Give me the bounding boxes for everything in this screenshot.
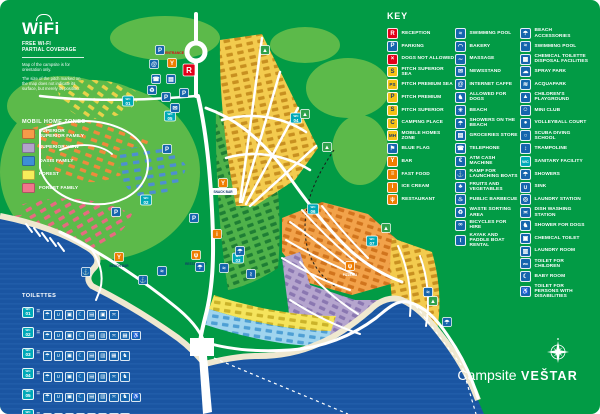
facility-icon: ∪ [54,372,64,382]
key-item: wc TOILET FOR CHILDREN [520,258,600,269]
key-label: PITCH SUPERIOR [402,108,456,113]
key-icon: ☂ [455,118,466,129]
key-item: ⚓ RAMP FOR LAUNCHING BOATS [455,169,519,180]
facility-icon: ∪ [54,393,64,403]
map-marker-internet-caffe[interactable]: @ [150,60,159,69]
campsite-title-prefix: Campsite [457,367,516,383]
key-item: ☁ SPRAY PARK [520,66,600,77]
compass-rose-icon [544,338,572,366]
key-icon: ≍ [520,207,531,218]
toilettes-row: WC 05 = ☂∪▣☾▤▥≍♞♿ [22,385,157,403]
wc-badge-number: 02 [25,332,30,337]
key-label: RAMP FOR LAUNCHING BOATS [470,169,520,179]
wifi-line2: PARTIAL COVERAGE [22,47,84,53]
key-item: ≡ FAST FOOD [387,169,455,180]
facility-icon: ▤ [87,351,97,361]
key-icon: ∼ [455,54,466,65]
zone-label: SUPERIOR VIEW [39,145,91,150]
key-icon: R [387,28,398,39]
key-item: C CAMPING PLACE [387,118,455,129]
key-icon: ≋ [520,79,531,90]
map-marker-parking[interactable]: P [162,93,171,102]
wc-badge: WC 01 [22,307,34,318]
facility-icon: ☂ [43,393,53,403]
facility-icons: ☂∪▣☾▤▥≍♞ [43,365,132,383]
key-item: ☎ TELEPHONE [455,143,519,154]
key-icon: ⚓ [455,169,466,180]
mobile-home-zones-list: SUPERIOR SUPERIOR FAMILY SUPERIOR VIEW O… [22,129,102,193]
wc-badge: WC 04 [22,368,34,379]
svg-text:▲: ▲ [430,299,436,305]
wifi-coverage: FREE WI-FI PARTIAL COVERAGE [22,41,84,58]
equals-sign: = [37,330,41,336]
key-icon: ☀ [455,105,466,116]
key-item: ≈ SWIMMING POOL [520,41,600,52]
facility-icon: ♿ [131,331,141,341]
toilettes-legend: TOILETTES WC 01 = ☂∪▣☾▤▣≍ WC 02 [22,293,157,414]
svg-text:♻: ♻ [149,87,154,94]
key-label: INTERNET CAFFE [470,82,520,87]
equals-sign: = [37,371,41,377]
mobile-home-zones-legend: MOBIL HOME ZONES SUPERIOR SUPERIOR FAMIL… [22,119,102,197]
svg-text:Y: Y [117,255,121,261]
key-label: PARKING [402,44,456,49]
map-marker-parking[interactable]: P [163,145,172,154]
map-wc-04[interactable]: WC04 [291,113,302,123]
key-icon: @ [455,79,466,90]
facility-icon: ▤ [87,310,97,320]
key-label: PITCH PREMIUM SEA [402,82,456,87]
key-icon: S [387,105,398,116]
svg-text:Y: Y [221,181,225,187]
facility-icon: ☾ [76,393,86,403]
key-icon: ◎ [520,194,531,205]
svg-text:@: @ [151,62,157,68]
facility-icon: ♿ [131,393,141,403]
map-marker-shower-beach[interactable]: ☂ [443,318,452,327]
key-item: WC SANITARY FACILITY [520,156,600,167]
key-icon: PS [387,79,398,90]
key-icon: wc [520,258,531,269]
facility-icon: ∪ [54,331,64,341]
facility-icon: ☾ [76,351,86,361]
key-icon: € [455,156,466,167]
key-item: ☀ BEACH [455,105,519,116]
key-label: MASSAGE [470,56,520,61]
svg-text:▲: ▲ [302,112,308,118]
key-item: ☂ BEACH ACCESSORIES [520,28,600,39]
facility-icon: ▥ [98,331,108,341]
map-marker-snack-bar[interactable]: Y [219,179,228,188]
key-icon: ☂ [520,169,531,180]
key-label: SANITARY FACILITY [535,159,589,164]
wc-badge-number: 04 [25,373,30,378]
facility-icon: ▣ [65,393,75,403]
key-item: ▥ LAUNDRY ROOM [520,246,600,257]
key-icon: ▤ [455,130,466,141]
svg-text:☂: ☂ [444,319,450,326]
zone-label: FOREST [39,172,91,177]
key-label: BABY ROOM [535,274,589,279]
facility-icons: ☂∪▣☾▤▥▦♞ [43,344,132,362]
map-marker-swimming-area[interactable]: ≈ [424,288,433,297]
svg-text:Y: Y [170,61,174,67]
key-item: MH MOBILE HOMES ZONE [387,130,455,141]
key-label: CAMPING PLACE [402,120,456,125]
key-item: ◎ LAUNDRY STATION [520,194,600,205]
facility-icons: ☂∪▣☾▤▥♞▥ [43,406,132,414]
key-label: FAST FOOD [402,172,456,177]
mobile-home-zones-title: MOBIL HOME ZONES [22,119,102,125]
facility-icon: ∪ [54,310,64,320]
facility-icon: ▥ [98,393,108,403]
snack-bar-label: SNACK BAR [213,190,233,194]
key-label: BLUE FLAG [402,146,456,151]
key-icon: ▣ [520,233,531,244]
svg-text:▲: ▲ [324,145,330,151]
key-label: CHILDREN'S PLAYGROUND [535,92,589,102]
key-label: TELEPHONE [470,146,520,151]
key-label: PUBLIC BARBECUE [470,197,520,202]
facility-icon: ☾ [76,310,86,320]
mobile-home-zone-item: FOREST FAMILY [22,183,102,193]
facility-icon: ▥ [98,351,108,361]
map-marker-newsstand[interactable]: ✉ [171,104,180,113]
key-label: TOILET FOR CHILDREN [535,259,589,269]
map-disclaimer-2: The size of the pitch marked on the map … [22,76,84,91]
map-marker-parking[interactable]: P [190,214,199,223]
key-icon: ∞ [455,220,466,231]
key-icon: ☎ [455,143,466,154]
key-item: ▲ CHILDREN'S PLAYGROUND [520,92,600,103]
key-label: DISH WASHING STATION [535,207,589,217]
key-label: CHEMICAL TOILETTE DISPOSAL FACILITIES [535,54,589,64]
map-marker-boat-ramp[interactable]: ⚓ [139,276,148,285]
key-item: ♨ PUBLIC BARBECUE [455,194,519,205]
key-icon: ∪ [520,182,531,193]
key-item: ☂ SHOWERS ON THE BEACH [455,118,519,129]
svg-text:P: P [182,91,186,97]
key-icon: ☺ [520,105,531,116]
key-item: ☾ BABY ROOM [520,271,600,282]
key-label: VOLLEYBALL COURT [535,120,589,125]
zone-label: OASIS FAMILY [39,159,91,164]
mobile-home-zone-item: SUPERIOR VIEW [22,143,102,153]
wc-badge-number: 01 [25,311,30,316]
facility-icon: ≍ [109,331,119,341]
key-icon: ψ [387,194,398,205]
key-item: ≈ SWIMMING POOL [455,28,519,39]
key-label: SHOWER FOR DOGS [535,223,589,228]
key-item: ○ SCUBA DIVING SCHOOL [520,130,600,141]
key-icon: C [387,118,398,129]
svg-text:☂: ☂ [237,248,243,255]
facility-icon: ♞ [120,351,130,361]
zone-label: SUPERIOR SUPERIOR FAMILY [39,129,91,139]
svg-text:05: 05 [168,116,173,121]
key-label: MOBILE HOMES ZONE [402,131,456,141]
key-item: ≍ DISH WASHING STATION [520,207,600,218]
map-wc-07[interactable]: WC07 [367,236,378,246]
zone-color-swatch [22,156,35,166]
facility-icon: ☾ [76,331,86,341]
map-marker-camping-zone[interactable]: ▲ [382,224,391,233]
svg-text:03: 03 [236,258,241,263]
key-label: SPRAY PARK [535,69,589,74]
key-label: RECEPTION [402,31,456,36]
map-marker-camping-zone[interactable]: ▲ [301,110,310,119]
facility-icon: ▣ [65,331,75,341]
svg-text:ψ: ψ [194,253,199,259]
map-marker-swimming-area[interactable]: ≈ [158,267,167,276]
svg-text:01: 01 [126,101,131,106]
key-item: ☺ MINI CLUB [520,105,600,116]
facility-icon: ≍ [109,372,119,382]
toilettes-row: WC 06 = ☂∪▣☾▤▥♞▥ [22,406,157,414]
key-icon: WC [520,156,531,167]
key-label: SWIMMING POOL [535,44,589,49]
key-column-1: R RECEPTION P PARKING × DOGS NOT ALLOWED… [387,28,455,207]
key-icon: ♻ [455,207,466,218]
map-wc-01[interactable]: WC01 [123,96,134,106]
key-icon: ≡ [387,169,398,180]
map-marker-reception[interactable]: R [183,64,195,76]
key-label: MINI CLUB [535,108,589,113]
key-item: ▤ GROCERIES STORE [455,130,519,141]
key-icon: i [387,182,398,193]
svg-text:⚓: ⚓ [82,268,89,276]
svg-text:P: P [192,216,196,222]
key-label: RESTAURANT [402,197,456,202]
key-item: ◠ BAKERY [455,41,519,52]
key-label: DOGS NOT ALLOWED [402,56,456,61]
map-marker-camping-zone[interactable]: ▲ [323,143,332,152]
key-icon: ≀ [455,235,466,246]
key-icon: ↕ [520,143,531,154]
campsite-title: Campsite VEŠTAR [430,367,578,385]
key-icon: ☂ [520,28,531,39]
key-icon: MH [387,130,398,141]
key-label: SHOWERS ON THE BEACH [470,118,520,128]
svg-text:⚓: ⚓ [139,276,146,284]
map-marker-parking[interactable]: P [112,208,121,217]
key-column-3: ☂ BEACH ACCESSORIES ≈ SWIMMING POOL ▦ CH… [520,28,600,301]
key-item: S PITCH SUPERIOR SEA [387,66,455,77]
map-marker-ice-cream[interactable]: i [213,230,222,239]
key-icon: Y [387,156,398,167]
key-label: ALLOWED FOR DOGS [470,92,520,102]
key-label: SWIMMING POOL [470,31,520,36]
facility-icons: ☂∪▣☾▤▥≍♞♿ [43,385,143,403]
zone-color-swatch [22,129,35,139]
key-item: ≋ ACQUAPARK [520,79,600,90]
key-icon: × [387,54,398,65]
map-marker-boat-ramp[interactable]: ⚓ [82,268,91,277]
key-icon: ☁ [520,66,531,77]
facility-icons: ☂∪▣☾▤▣≍ [43,303,121,321]
key-label: KAYAK AND PADDLE BOAT RENTAL [470,233,520,249]
key-icon: ▲ [520,92,531,103]
key-icon: ♞ [520,220,531,231]
key-icon: ♞ [455,92,466,103]
toilettes-list: WC 01 = ☂∪▣☾▤▣≍ WC 02 = ☂∪▣☾▤▥≍▦♿ [22,303,157,414]
facility-icon: ▣ [98,310,108,320]
svg-text:P: P [165,147,169,153]
equals-sign: = [37,350,41,356]
svg-text:≀: ≀ [250,272,252,278]
wc-badge: WC 06 [22,409,34,414]
toilettes-row: WC 02 = ☂∪▣☾▤▥≍▦♿ [22,324,157,342]
map-wc-06[interactable]: WC06 [308,204,319,214]
key-label: BAKERY [470,44,520,49]
facility-icon: ☂ [43,310,53,320]
key-icon: ● [520,118,531,129]
key-label: NEWSSTAND [470,69,520,74]
key-item: S PITCH SUPERIOR [387,105,455,116]
key-label: SHOWERS [535,172,589,177]
key-item: @ INTERNET CAFFE [455,79,519,90]
map-wc-02[interactable]: WC02 [141,195,152,205]
key-item: ▣ CHEMICAL TOILET [520,233,600,244]
key-label: BEACH ACCESSORIES [535,28,589,38]
map-marker-shower-beach[interactable]: ☂ [196,263,205,272]
equals-sign: = [37,391,41,397]
facility-icon: ≍ [109,393,119,403]
map-disclaimer-1: Map of the campsite is for orientation o… [22,62,84,72]
mobile-home-zone-item: OASIS FAMILY [22,156,102,166]
campsite-map: MAIN ENTRANCE BEACH BAR RESTAURANT PIZZE… [0,0,600,414]
facility-icon: ☂ [43,351,53,361]
key-item: i ICE CREAM [387,182,455,193]
map-marker-restaurant[interactable]: ψ [192,251,201,260]
key-label: BAR [402,159,456,164]
key-title: KEY [387,11,408,21]
facility-icon: ∪ [54,351,64,361]
key-icon: ▥ [520,246,531,257]
toilettes-row: WC 01 = ☂∪▣☾▤▣≍ [22,303,157,321]
pizzeria-label: PIZZERIA [343,273,358,277]
key-item: P PARKING [387,41,455,52]
svg-text:▤: ▤ [168,77,174,83]
key-icon: P [387,41,398,52]
zone-color-swatch [22,143,35,153]
key-item: ↕ TRAMPOLINE [520,143,600,154]
wifi-logo: WiFi [22,21,112,37]
svg-text:☂: ☂ [197,264,203,271]
key-item: ♻ WASTE SORTING AREA [455,207,519,218]
map-marker-telephone[interactable]: ☎ [152,75,161,84]
map-marker-swimming-area[interactable]: ≈ [220,264,229,273]
svg-text:P: P [158,48,162,54]
key-label: LAUNDRY ROOM [535,248,589,253]
key-icon: ♨ [455,194,466,205]
key-icon: P [387,92,398,103]
svg-text:▲: ▲ [383,226,389,232]
map-marker-camping-zone[interactable]: ▲ [261,46,270,55]
key-item: ∪ SINK [520,182,600,193]
map-marker-beach-bar[interactable]: Y [115,253,124,262]
map-marker-bar[interactable]: Y [168,59,177,68]
zone-color-swatch [22,170,35,180]
key-item: ♞ SHOWER FOR DOGS [520,220,600,231]
key-icon: ▦ [520,54,531,65]
key-item: P PITCH PREMIUM [387,92,455,103]
key-column-2: ≈ SWIMMING POOL ◠ BAKERY ∼ MASSAGE ✉ NEW… [455,28,519,250]
map-marker-kayak-rental[interactable]: ≀ [247,270,256,279]
key-icon: S [387,66,398,77]
key-label: ICE CREAM [402,184,456,189]
campsite-title-name: VEŠTAR [521,369,578,383]
key-icon: ☾ [520,271,531,282]
key-label: CHEMICAL TOILET [535,236,589,241]
key-item: ♿ TOILET FOR PERSONS WITH DISABILITIES [520,284,600,300]
key-icon: ≈ [455,28,466,39]
wifi-info: WiFi FREE WI-FI PARTIAL COVERAGE Map of … [22,14,112,91]
wc-badge: WC 05 [22,389,34,400]
zone-label: FOREST FAMILY [39,186,91,191]
svg-text:P: P [164,95,168,101]
key-item: € ATM CASH MACHINE [455,156,519,167]
zone-color-swatch [22,183,35,193]
map-marker-pizzeria[interactable]: ψ [346,262,355,271]
key-item: ∞ BICYCLES FOR HIRE [455,220,519,231]
facility-icon: ▣ [65,310,75,320]
map-marker-parking[interactable]: P [156,46,165,55]
wc-badge: WC 03 [22,348,34,359]
facility-icon: ▥ [98,372,108,382]
key-item: × DOGS NOT ALLOWED [387,54,455,65]
key-icon: ○ [520,130,531,141]
facility-icon: ▤ [87,393,97,403]
key-label: TRAMPOLINE [535,146,589,151]
key-item: ψ RESTAURANT [387,194,455,205]
toilettes-row: WC 03 = ☂∪▣☾▤▥▦♞ [22,344,157,362]
key-label: LAUNDRY STATION [535,197,589,202]
svg-text:ψ: ψ [348,264,353,270]
facility-icon: ▤ [87,372,97,382]
key-icon: ⚑ [387,143,398,154]
facility-icon: ▤ [87,331,97,341]
wc-badge-number: 03 [25,352,30,357]
facility-icon: ▦ [120,331,130,341]
svg-text:02: 02 [144,200,149,205]
key-label: GROCERIES STORE [470,133,520,138]
wc-badge: WC 02 [22,327,34,338]
svg-text:▲: ▲ [262,48,268,54]
facility-icon: ♞ [120,393,130,403]
key-label: SINK [535,184,589,189]
facility-icon: ▦ [109,351,119,361]
key-item: ✉ NEWSSTAND [455,66,519,77]
key-icon: ✉ [455,66,466,77]
map-marker-shower-beach[interactable]: ☂ [236,247,245,256]
key-label: ATM CASH MACHINE [470,156,520,166]
key-item: PS PITCH PREMIUM SEA [387,79,455,90]
map-marker-waste-sorting[interactable]: ♻ [148,86,157,95]
key-item: ≀ KAYAK AND PADDLE BOAT RENTAL [455,233,519,249]
svg-text:04: 04 [294,118,299,123]
key-label: SCUBA DIVING SCHOOL [535,131,589,141]
key-item: ▦ CHEMICAL TOILETTE DISPOSAL FACILITIES [520,54,600,65]
equals-sign: = [37,309,41,315]
map-marker-camping-zone[interactable]: ▲ [429,297,438,306]
svg-text:R: R [186,66,192,75]
facility-icon: ▣ [65,351,75,361]
map-marker-groceries-store[interactable]: ▤ [167,75,176,84]
key-icon: ♣ [455,182,466,193]
key-label: PITCH SUPERIOR SEA [402,67,456,77]
map-marker-parking[interactable]: P [180,89,189,98]
